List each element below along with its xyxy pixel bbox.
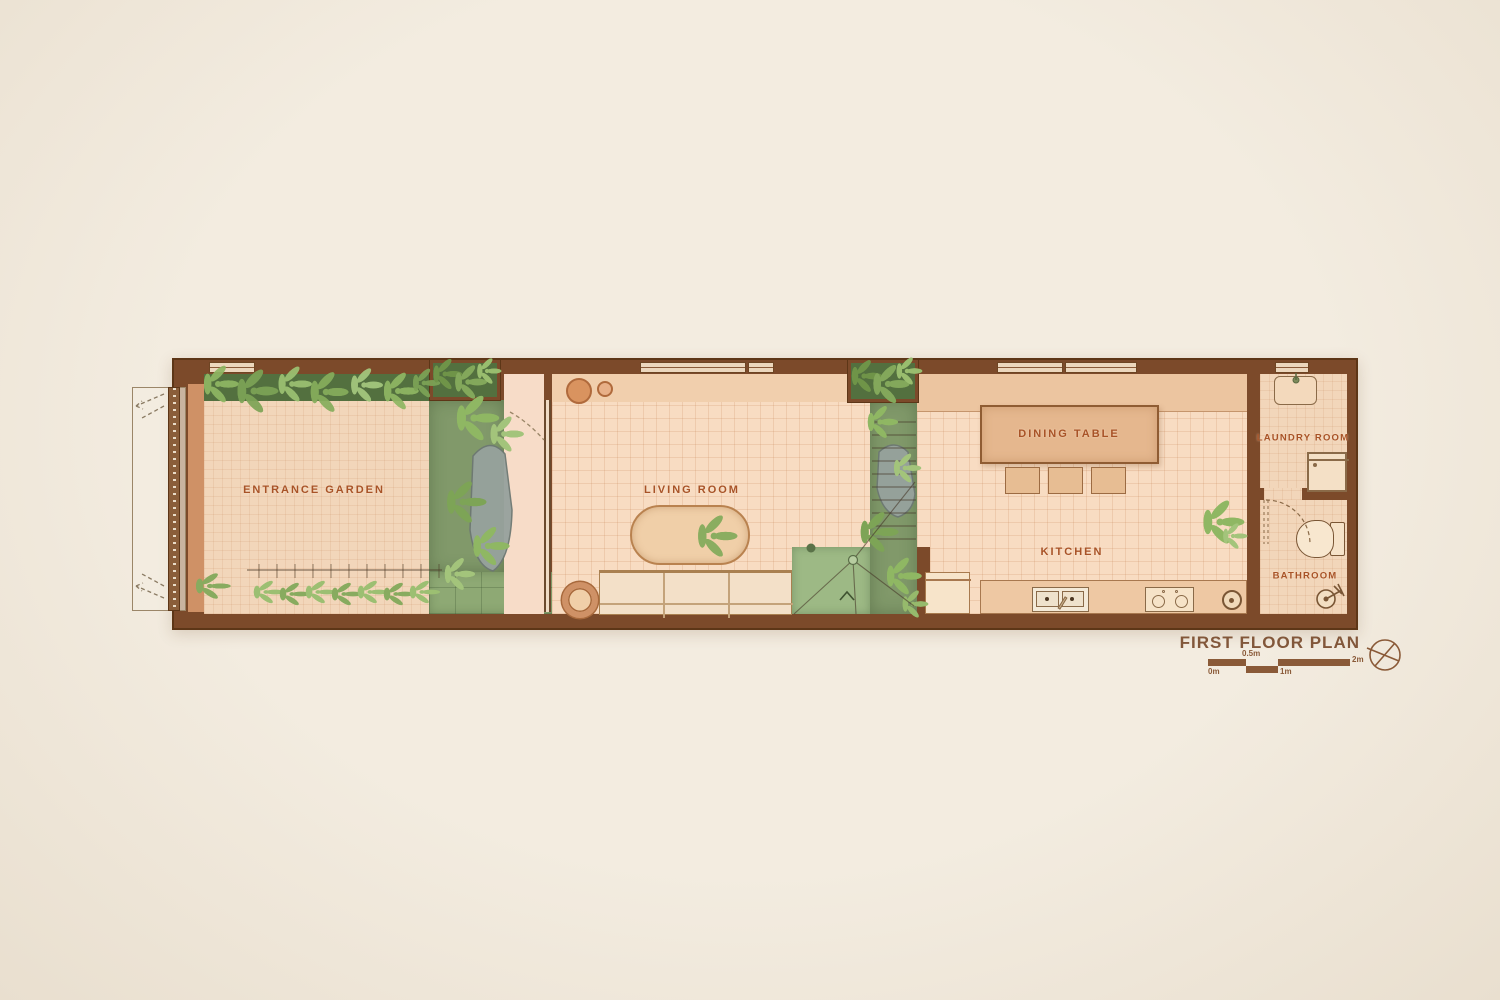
garden-courtyard — [429, 400, 504, 572]
divider-wall-upper — [1247, 374, 1260, 420]
refrigerator-door-seam — [926, 579, 971, 581]
stove-burner-left — [1152, 595, 1165, 608]
bathroom-label: BATHROOM — [1273, 571, 1338, 582]
stove-knob-1 — [1162, 590, 1165, 593]
divider-wall-lower — [1247, 482, 1260, 614]
garden-window — [209, 362, 255, 373]
entry-gate-leaf — [168, 387, 180, 611]
dining-stool-2 — [1048, 467, 1083, 494]
planter-box-2 — [848, 360, 918, 402]
kitchen-label: KITCHEN — [1041, 546, 1104, 558]
laundry-room-label: LAUNDRY ROOM — [1257, 433, 1350, 444]
bathroom-floor — [1260, 500, 1347, 614]
sink-drain-right — [1070, 597, 1074, 601]
north-arrow-icon — [1364, 635, 1404, 675]
dining-table-label: DINING TABLE — [1018, 428, 1119, 440]
refrigerator — [925, 572, 970, 614]
washer-panel-line — [1309, 459, 1349, 461]
scale-segment-2 — [1246, 666, 1278, 673]
bathroom-door-gap — [1264, 488, 1302, 500]
rice-cooker — [1222, 590, 1242, 610]
garden-planter-strip — [204, 374, 429, 401]
scale-segment-1 — [1208, 659, 1246, 666]
living-room-window-2 — [748, 362, 774, 373]
rice-cooker-knob — [1229, 598, 1234, 603]
sliding-door — [544, 400, 551, 612]
entrance-garden-label: ENTRANCE GARDEN — [243, 484, 385, 496]
laundry-window — [1275, 362, 1309, 373]
stove-knob-2 — [1175, 590, 1178, 593]
entry-walkway — [188, 384, 204, 612]
living-room-window-1 — [640, 362, 746, 373]
sofa-seam-2 — [728, 573, 730, 618]
washer-knob — [1313, 463, 1317, 467]
stair-courtyard — [870, 400, 917, 614]
console-bowl-large — [566, 378, 592, 404]
planter-box-1 — [430, 360, 500, 400]
scale-label-2m: 2m — [1352, 656, 1364, 664]
sofa — [599, 570, 792, 615]
scale-bar: 0m 0.5m 1m 2m — [1208, 656, 1360, 678]
washing-machine — [1307, 452, 1347, 492]
sink-drain-left — [1045, 597, 1049, 601]
dining-stool-1 — [1005, 467, 1040, 494]
floor-plan-drawing: ENTRANCE GARDEN LIVING ROOM DINING TABLE… — [172, 358, 1358, 630]
scale-label-05m: 0.5m — [1242, 650, 1260, 658]
kitchen-window-2 — [1065, 362, 1137, 373]
coffee-table — [630, 505, 750, 565]
entry-porch — [504, 374, 544, 614]
sofa-seat-line — [600, 603, 793, 605]
kitchen-sink — [1032, 587, 1089, 612]
stair-landing — [792, 547, 870, 614]
scale-label-0m: 0m — [1208, 668, 1220, 676]
scale-segment-3 — [1278, 659, 1350, 666]
plan-title: FIRST FLOOR PLAN — [1180, 633, 1360, 652]
sofa-seam-1 — [663, 573, 665, 618]
scale-label-1m: 1m — [1280, 668, 1292, 676]
console-bowl-small — [597, 381, 613, 397]
kitchen-counter — [980, 580, 1247, 614]
title-block: FIRST FLOOR PLAN — [1040, 633, 1360, 653]
stove-burner-right — [1175, 595, 1188, 608]
living-room-label: LIVING ROOM — [644, 484, 740, 496]
toilet-bowl — [1296, 520, 1334, 558]
dining-stool-3 — [1091, 467, 1126, 494]
kitchen-window-1 — [997, 362, 1063, 373]
floor-pot — [562, 582, 598, 618]
stove — [1145, 587, 1194, 612]
laundry-sink — [1274, 376, 1317, 405]
